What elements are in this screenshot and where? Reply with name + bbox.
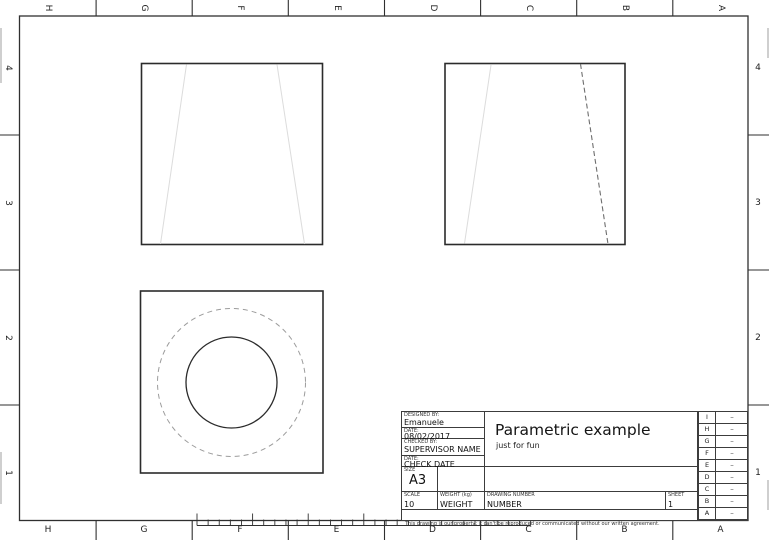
sheet-cell: SHEET 1	[666, 492, 698, 510]
revision-letter: D	[699, 472, 716, 484]
zone-letter-label: F	[235, 5, 245, 10]
revision-value: –	[716, 412, 748, 424]
drawing-subtitle[interactable]: just for fun	[485, 439, 697, 451]
zone-letter-label: D	[428, 5, 438, 12]
projection-cell	[438, 467, 485, 492]
zone-letter-label: A	[717, 525, 723, 535]
logo-cell	[485, 467, 698, 492]
top-view[interactable]	[141, 291, 324, 473]
zone-letter-label: H	[45, 525, 52, 535]
zone-number-label: 4	[3, 65, 13, 71]
weight-label: WEIGHT (kg)	[438, 492, 484, 498]
revision-letter: C	[699, 484, 716, 496]
side-view[interactable]	[445, 64, 625, 245]
designed-by-value[interactable]: Emanuele	[402, 418, 484, 427]
revision-letter: G	[699, 436, 716, 448]
revision-value: –	[716, 448, 748, 460]
drawing-sheet: H G F E D C B A H G F E D C B A 4 3 2 1 …	[0, 0, 769, 540]
revision-value: –	[716, 472, 748, 484]
weight-value[interactable]: WEIGHT	[438, 500, 484, 509]
designed-by-cell: DESIGNED BY: Emanuele	[402, 412, 485, 428]
front-view[interactable]	[142, 64, 323, 245]
zone-number-label: 2	[3, 335, 13, 341]
title-block: DESIGNED BY: Emanuele DATE: 08/02/2017 C…	[401, 411, 748, 521]
zone-number-label: 1	[3, 470, 13, 476]
zone-number-label: 1	[755, 468, 761, 478]
revision-letter: B	[699, 496, 716, 508]
zone-letter-label: H	[43, 5, 53, 12]
zone-letter-label: B	[620, 5, 630, 11]
title-cell: Parametric example just for fun	[485, 412, 698, 467]
revision-value: –	[716, 508, 748, 520]
zone-number-label: 3	[755, 198, 761, 208]
revision-value: –	[716, 460, 748, 472]
drawing-number-label: DRAWING NUMBER	[485, 492, 665, 498]
drawing-title[interactable]: Parametric example	[485, 412, 697, 439]
revision-value: –	[716, 424, 748, 436]
revision-letter: I	[699, 412, 716, 424]
zone-letter-label: E	[334, 525, 340, 535]
sheet-value[interactable]: 1	[666, 500, 697, 509]
size-value[interactable]: A3	[402, 473, 437, 488]
checked-by-cell: CHECKED BY: SUPERVISOR NAME	[402, 439, 485, 456]
revision-letter: A	[699, 508, 716, 520]
revision-table: I– H– G– F– E– D– C– B– A–	[698, 412, 747, 520]
check-date-cell: DATE: CHECK DATE	[402, 456, 485, 467]
revision-letter: E	[699, 460, 716, 472]
weight-cell: WEIGHT (kg) WEIGHT	[438, 492, 485, 510]
note-cell: This drawing is our property; it can't b…	[402, 510, 698, 520]
sheet-label: SHEET	[666, 492, 697, 498]
scale-value[interactable]: 10	[402, 500, 437, 509]
zone-letter-label: A	[716, 5, 726, 11]
zone-letter-label: E	[332, 5, 342, 11]
property-note: This drawing is our property; it can't b…	[402, 521, 660, 527]
zone-number-label: 2	[755, 333, 761, 343]
revision-value: –	[716, 436, 748, 448]
revision-letter: F	[699, 448, 716, 460]
zone-letter-label: G	[139, 5, 149, 12]
date-cell: DATE: 08/02/2017	[402, 428, 485, 439]
zone-letter-label: C	[524, 5, 534, 11]
revision-value: –	[716, 496, 748, 508]
drawing-number-value[interactable]: NUMBER	[485, 500, 665, 509]
revision-value: –	[716, 484, 748, 496]
zone-letter-label: G	[141, 525, 148, 535]
zone-letter-label: F	[237, 525, 242, 535]
zone-number-label: 4	[755, 63, 761, 73]
scale-cell: SCALE 10	[402, 492, 438, 510]
scale-label: SCALE	[402, 492, 437, 498]
revision-letter: H	[699, 424, 716, 436]
size-cell: SIZE A3	[402, 467, 438, 492]
drawing-number-cell: DRAWING NUMBER NUMBER	[485, 492, 666, 510]
checked-by-value[interactable]: SUPERVISOR NAME	[402, 445, 484, 454]
zone-number-label: 3	[3, 200, 13, 206]
